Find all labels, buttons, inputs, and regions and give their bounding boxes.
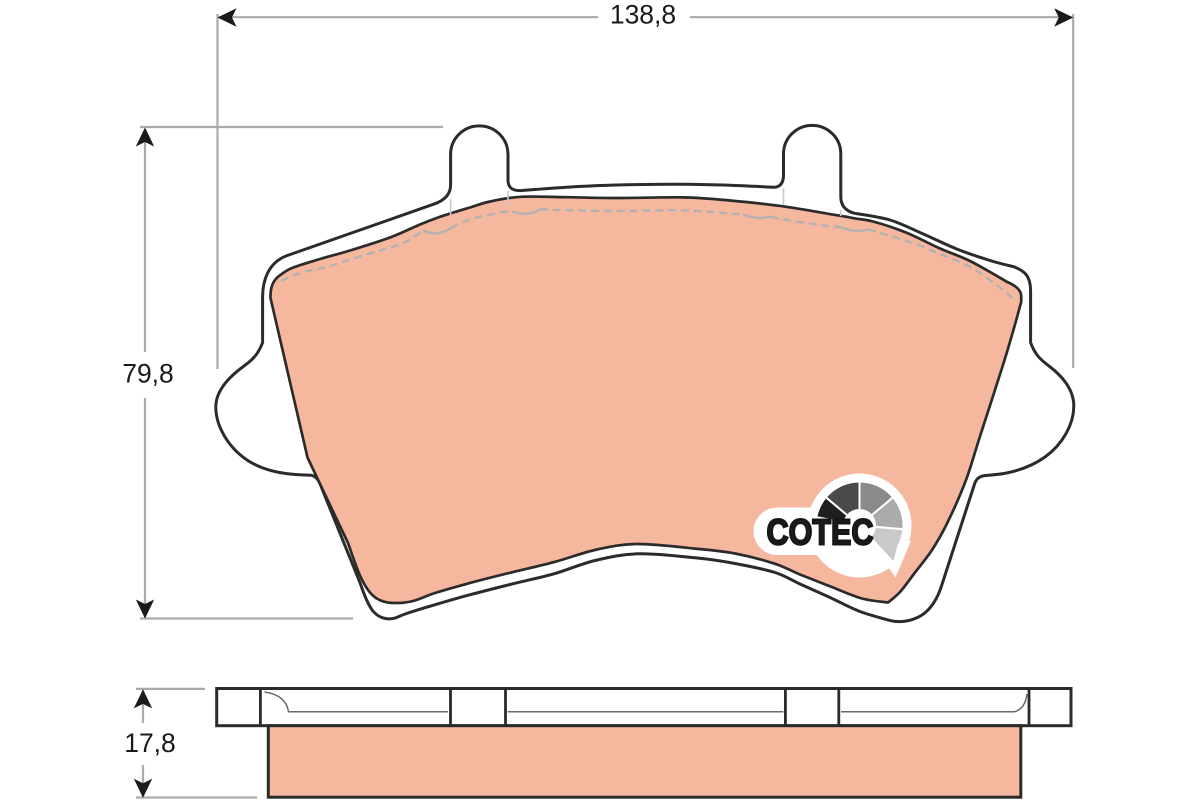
svg-text:79,8: 79,8 <box>122 359 174 389</box>
svg-text:138,8: 138,8 <box>610 0 676 29</box>
svg-text:COTEC: COTEC <box>767 512 874 553</box>
svg-text:17,8: 17,8 <box>124 728 176 758</box>
